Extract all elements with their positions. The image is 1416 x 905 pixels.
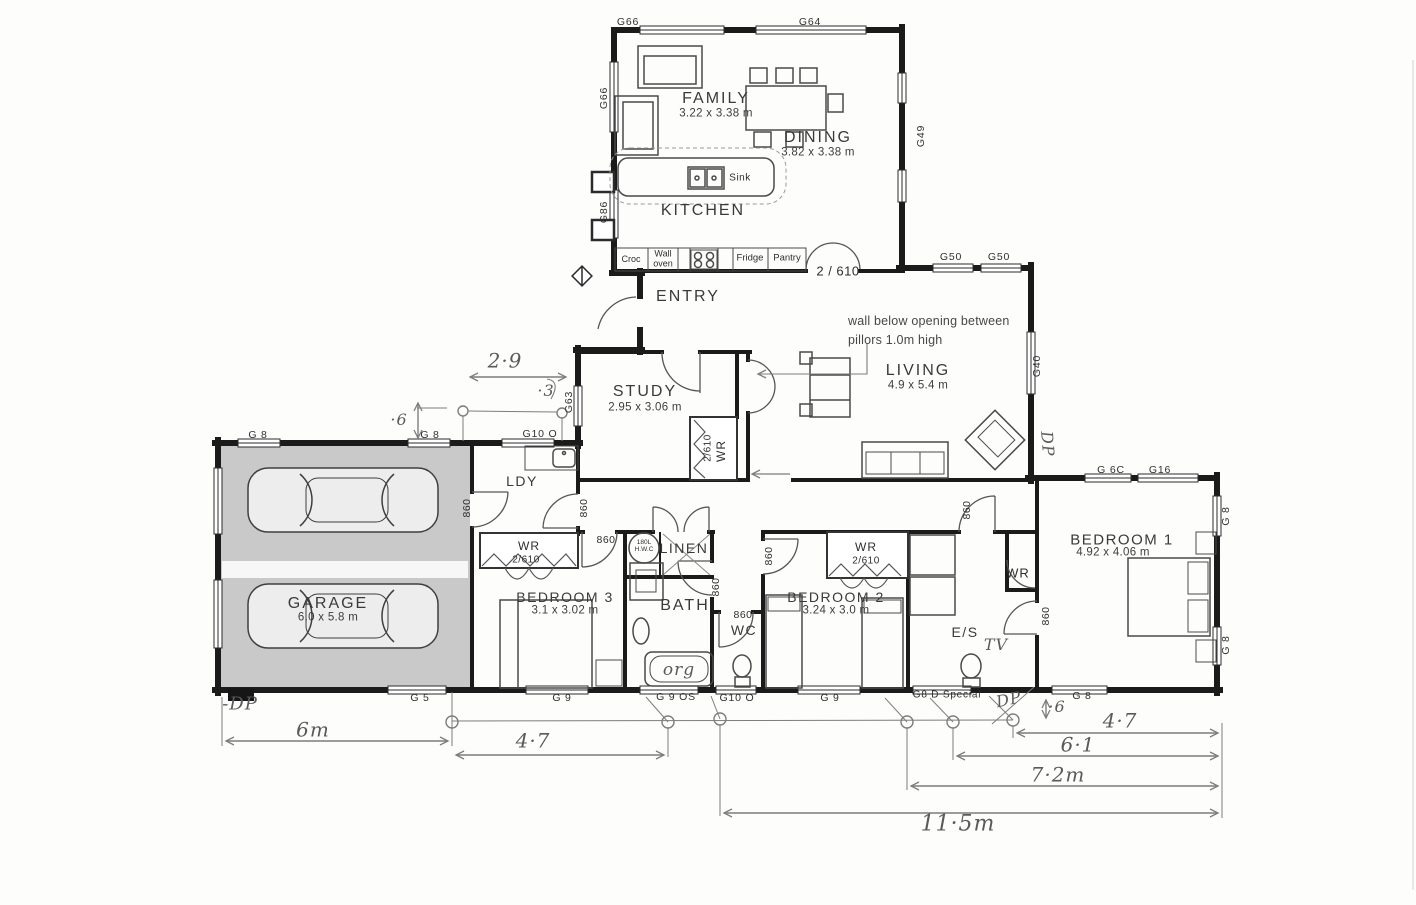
window-label-g50: G50 <box>988 251 1010 263</box>
room-label-laundry: LDY <box>506 473 538 489</box>
window-label-g9os: G 9 OS <box>656 691 696 703</box>
window-label-g9: G 9 <box>820 692 839 704</box>
downpipe-label: DP <box>1037 430 1058 457</box>
dimension-7-2m: 7·2m <box>1031 764 1086 787</box>
window-label-g5: G 5 <box>410 692 429 704</box>
window-label-g8: G 8 <box>248 429 267 441</box>
room-label-ensuite: E/S <box>951 624 978 640</box>
sofa-icon <box>638 46 702 88</box>
vanity-icon <box>630 563 663 600</box>
window-label-g6c: G 6C <box>1097 464 1125 476</box>
wardrobe-size: 2/610 <box>702 434 714 462</box>
dimension-point-3: ·3 <box>537 382 554 400</box>
window-label-g50: G50 <box>940 251 962 263</box>
room-dims-bedroom2: 3.24 x 3.0 m <box>803 604 870 617</box>
room-label-bedroom2: BEDROOM 2 <box>787 589 885 605</box>
room-label-linen: LINEN <box>660 540 709 556</box>
door-label-860: 860 <box>578 498 590 517</box>
wardrobe-size: 2/610 <box>512 554 540 566</box>
dimension-11-5m: 11·5m <box>921 811 996 836</box>
window-label-g8: G 8 <box>420 429 439 441</box>
fridge-label: Fridge <box>737 254 764 265</box>
wardrobe-label: WR <box>518 540 540 554</box>
window-label-g66: G66 <box>598 87 610 109</box>
window-label-g16: G16 <box>1149 464 1171 476</box>
door-label-860: 860 <box>733 609 752 621</box>
window-label-g86: G86 <box>598 201 610 223</box>
dimension-6-1: 6·1 <box>1061 734 1096 757</box>
dimension-6m: 6m <box>296 719 330 742</box>
dimension-2-9: 2·9 <box>488 350 523 373</box>
window-label-g8: G 8 <box>1072 690 1091 702</box>
basin-icon <box>633 618 649 644</box>
door-size-label: 2 / 610 <box>816 265 859 280</box>
laundry-tub-icon <box>525 446 578 470</box>
door-label-860: 860 <box>1040 606 1052 625</box>
furniture <box>248 46 1216 688</box>
door-label-860: 860 <box>710 577 722 596</box>
room-label-bedroom3: BEDROOM 3 <box>516 589 614 605</box>
car-icon <box>248 468 438 532</box>
wardrobe-label: WR <box>715 440 729 462</box>
window-label-g40: G40 <box>1031 355 1043 377</box>
room-label-living: LIVING <box>886 362 950 380</box>
window-label-g10o: G10 O <box>720 692 755 704</box>
dimension-point-6: ·6 <box>1048 698 1065 716</box>
window-label-g8: G 8 <box>1220 635 1232 654</box>
room-dims-bedroom3: 3.1 x 3.02 m <box>532 604 599 617</box>
window-label-g66: G66 <box>617 16 639 28</box>
sink-icon <box>688 167 724 189</box>
cooktop-icon <box>691 250 717 269</box>
hwc-label: 180L H.W.C <box>635 540 654 554</box>
door-label-860: 860 <box>763 546 775 565</box>
wall-oven-label: Wall oven <box>653 249 673 270</box>
armchair-icon <box>965 410 1024 469</box>
toilet-icon <box>961 654 981 687</box>
window-label-g8: G 8 <box>1220 506 1232 525</box>
room-label-bath: BATH <box>660 597 709 615</box>
floorplan-page: FAMILY 3.22 x 3.38 m DINING 3.82 x 3.38 … <box>0 0 1416 905</box>
dimension-4-7: 4·7 <box>1103 710 1138 733</box>
sink-label: Sink <box>729 172 750 184</box>
wardrobe-label: WR <box>1006 567 1030 582</box>
wardrobe-size: 2/610 <box>852 555 880 567</box>
room-label-study: STUDY <box>613 383 677 401</box>
window-label-g8d: G8 D Special <box>913 689 982 701</box>
window-label-g9: G 9 <box>552 692 571 704</box>
door-label-860: 860 <box>596 534 615 546</box>
tv-annotation: TV <box>984 636 1008 654</box>
room-label-family: FAMILY <box>682 90 750 108</box>
door-label-860: 860 <box>961 500 973 519</box>
room-dims-dining: 3.82 x 3.38 m <box>781 146 855 159</box>
pantry-label: Pantry <box>773 254 800 265</box>
entry-window-icon <box>572 266 592 286</box>
room-dims-living: 4.9 x 5.4 m <box>888 379 948 392</box>
org-annotation: org <box>663 661 695 681</box>
kitchen-island-icon <box>610 148 786 204</box>
living-shelf-icon <box>800 352 850 417</box>
toilet-icon <box>733 655 751 687</box>
dimension-4-7: 4·7 <box>516 730 551 753</box>
downpipe-label: -DP <box>222 695 258 716</box>
dimension-point-6: ·6 <box>390 411 407 429</box>
door-label-860: 860 <box>461 498 473 517</box>
window-label-g64: G64 <box>799 16 821 28</box>
room-dims-family: 3.22 x 3.38 m <box>679 107 753 120</box>
bed-icon <box>766 595 802 688</box>
window-label-g49: G49 <box>915 125 927 147</box>
window-label-g10o: G10 O <box>523 428 558 440</box>
room-label-entry: ENTRY <box>656 288 720 306</box>
room-label-kitchen: KITCHEN <box>661 202 745 220</box>
sofa-icon <box>862 442 948 478</box>
room-dims-study: 2.95 x 3.06 m <box>608 401 682 414</box>
window-label-g63: G63 <box>563 391 575 413</box>
croc-label: Croc <box>621 254 640 264</box>
sofa-icon <box>615 96 658 155</box>
room-label-dining: DINING <box>784 129 852 147</box>
room-label-wc: WC <box>731 622 757 638</box>
shower-icon <box>910 535 955 615</box>
room-dims-bedroom1: 4.92 x 4.06 m <box>1076 546 1150 559</box>
wardrobe-label: WR <box>855 541 877 555</box>
wall-note: wall below opening between pillors 1.0m … <box>848 312 1010 351</box>
room-dims-garage: 6.0 x 5.8 m <box>298 611 358 624</box>
